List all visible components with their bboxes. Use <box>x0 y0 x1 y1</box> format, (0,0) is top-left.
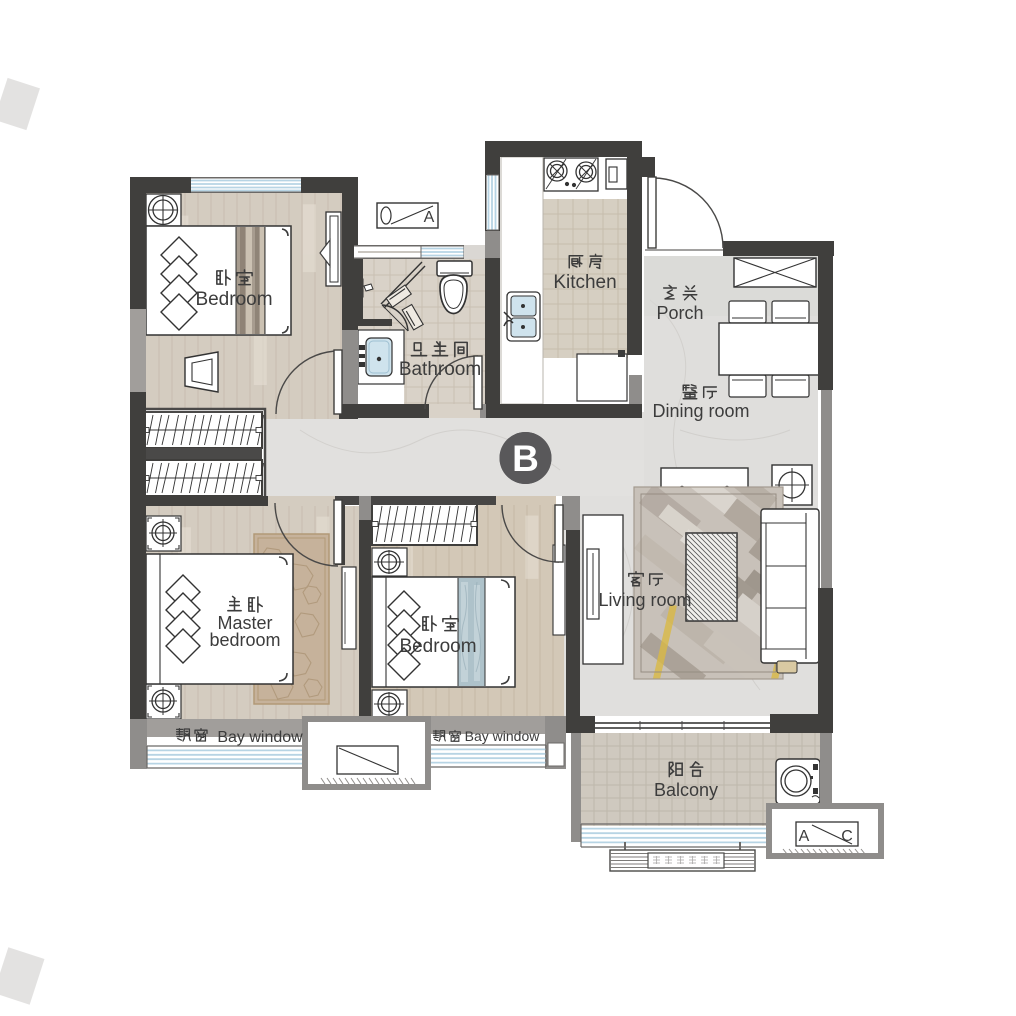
svg-text:A: A <box>424 209 435 226</box>
svg-text:Bay window: Bay window <box>217 729 303 746</box>
svg-text:A: A <box>799 828 810 845</box>
svg-text:bedroom: bedroom <box>209 630 280 650</box>
svg-text:Porch: Porch <box>656 303 703 323</box>
svg-text:Bedroom: Bedroom <box>195 289 272 310</box>
svg-text:Living room: Living room <box>598 590 691 610</box>
svg-text:Bathroom: Bathroom <box>399 359 481 380</box>
svg-text:C: C <box>841 828 853 845</box>
svg-text:Bedroom: Bedroom <box>399 636 476 657</box>
svg-text:Kitchen: Kitchen <box>553 272 616 293</box>
svg-text:Balcony: Balcony <box>654 780 718 800</box>
svg-text:Bay window: Bay window <box>465 728 541 744</box>
svg-text:Dining room: Dining room <box>652 401 749 421</box>
svg-text:B: B <box>512 438 539 479</box>
